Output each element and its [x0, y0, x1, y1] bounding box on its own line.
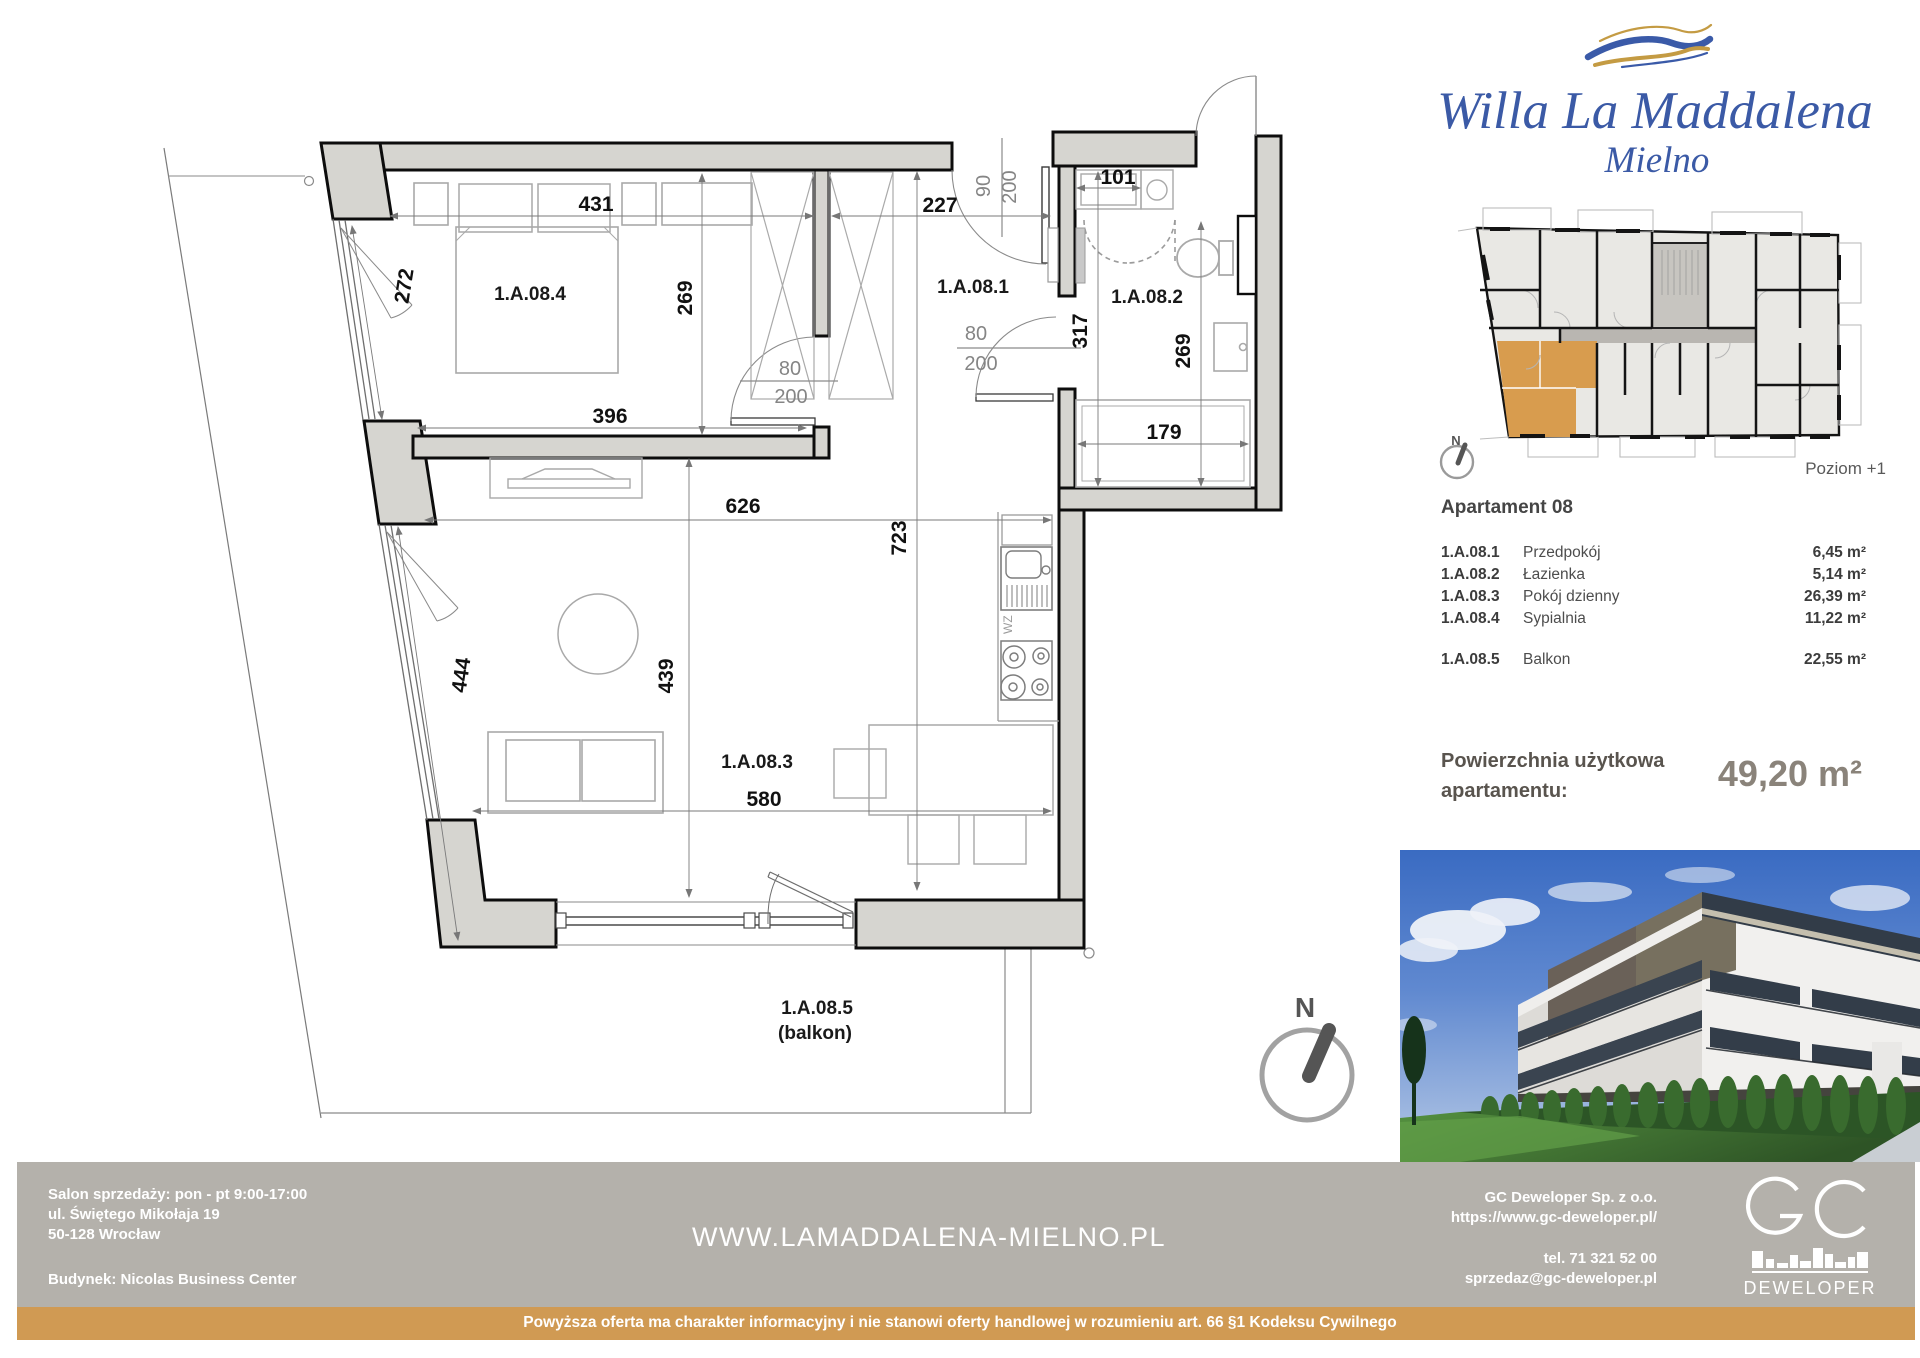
svg-text:272: 272 — [390, 267, 418, 305]
svg-text:1.A.08.2: 1.A.08.2 — [1111, 287, 1183, 308]
svg-text:626: 626 — [725, 495, 760, 518]
svg-text:N: N — [1451, 433, 1460, 448]
svg-text:Poziom +1: Poziom +1 — [1805, 459, 1886, 478]
svg-text:179: 179 — [1146, 421, 1181, 444]
svg-text:200: 200 — [964, 353, 997, 375]
svg-text:269: 269 — [1172, 333, 1195, 368]
svg-text:80: 80 — [779, 358, 801, 380]
svg-text:80: 80 — [965, 323, 987, 345]
svg-text:1.A.08.5: 1.A.08.5 — [781, 998, 853, 1019]
svg-text:227: 227 — [922, 194, 957, 217]
svg-text:101: 101 — [1100, 166, 1135, 189]
svg-text:396: 396 — [592, 405, 627, 428]
svg-text:317: 317 — [1069, 313, 1092, 348]
svg-text:580: 580 — [746, 788, 781, 811]
svg-text:(balkon): (balkon) — [778, 1023, 852, 1044]
svg-text:N: N — [1295, 992, 1315, 1023]
svg-text:200: 200 — [774, 386, 807, 408]
svg-text:269: 269 — [674, 280, 697, 315]
svg-text:Mielno: Mielno — [1604, 140, 1710, 181]
svg-text:444: 444 — [448, 656, 476, 694]
svg-text:1.A.08.1: 1.A.08.1 — [937, 277, 1009, 298]
svg-text:90: 90 — [973, 175, 995, 197]
svg-text:WZ: WZ — [1001, 615, 1015, 634]
svg-text:DEWELOPER: DEWELOPER — [1743, 1278, 1876, 1298]
svg-text:431: 431 — [578, 193, 613, 216]
svg-text:Willa La Maddalena: Willa La Maddalena — [1437, 82, 1873, 140]
svg-text:439: 439 — [655, 658, 678, 693]
svg-text:723: 723 — [888, 520, 911, 555]
svg-text:1.A.08.3: 1.A.08.3 — [721, 752, 793, 773]
svg-text:200: 200 — [999, 170, 1021, 203]
svg-text:1.A.08.4: 1.A.08.4 — [494, 284, 566, 305]
